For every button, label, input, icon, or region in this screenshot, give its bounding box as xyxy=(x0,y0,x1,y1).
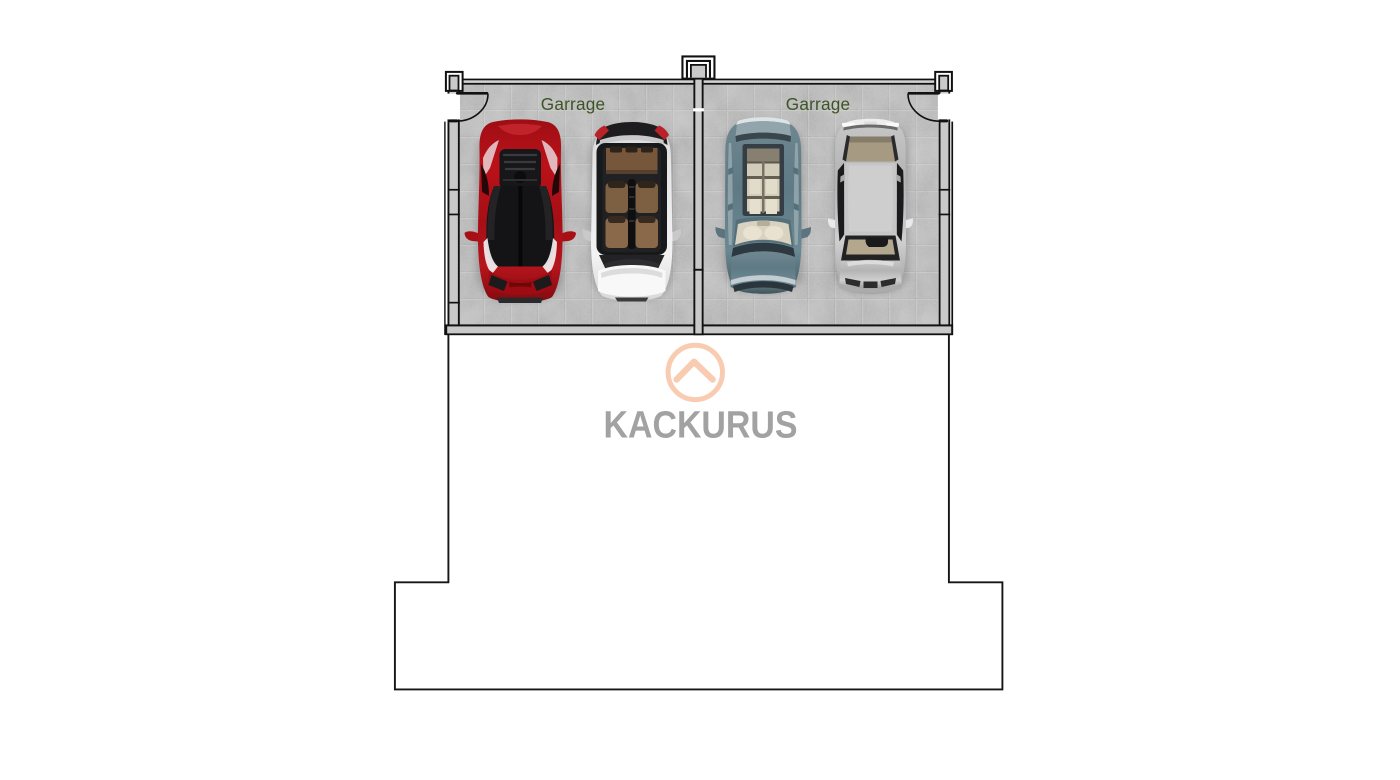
svg-text:Garrage: Garrage xyxy=(541,94,605,114)
svg-text:KACKURUS: KACKURUS xyxy=(604,405,798,447)
svg-text:Garrage: Garrage xyxy=(786,94,850,114)
